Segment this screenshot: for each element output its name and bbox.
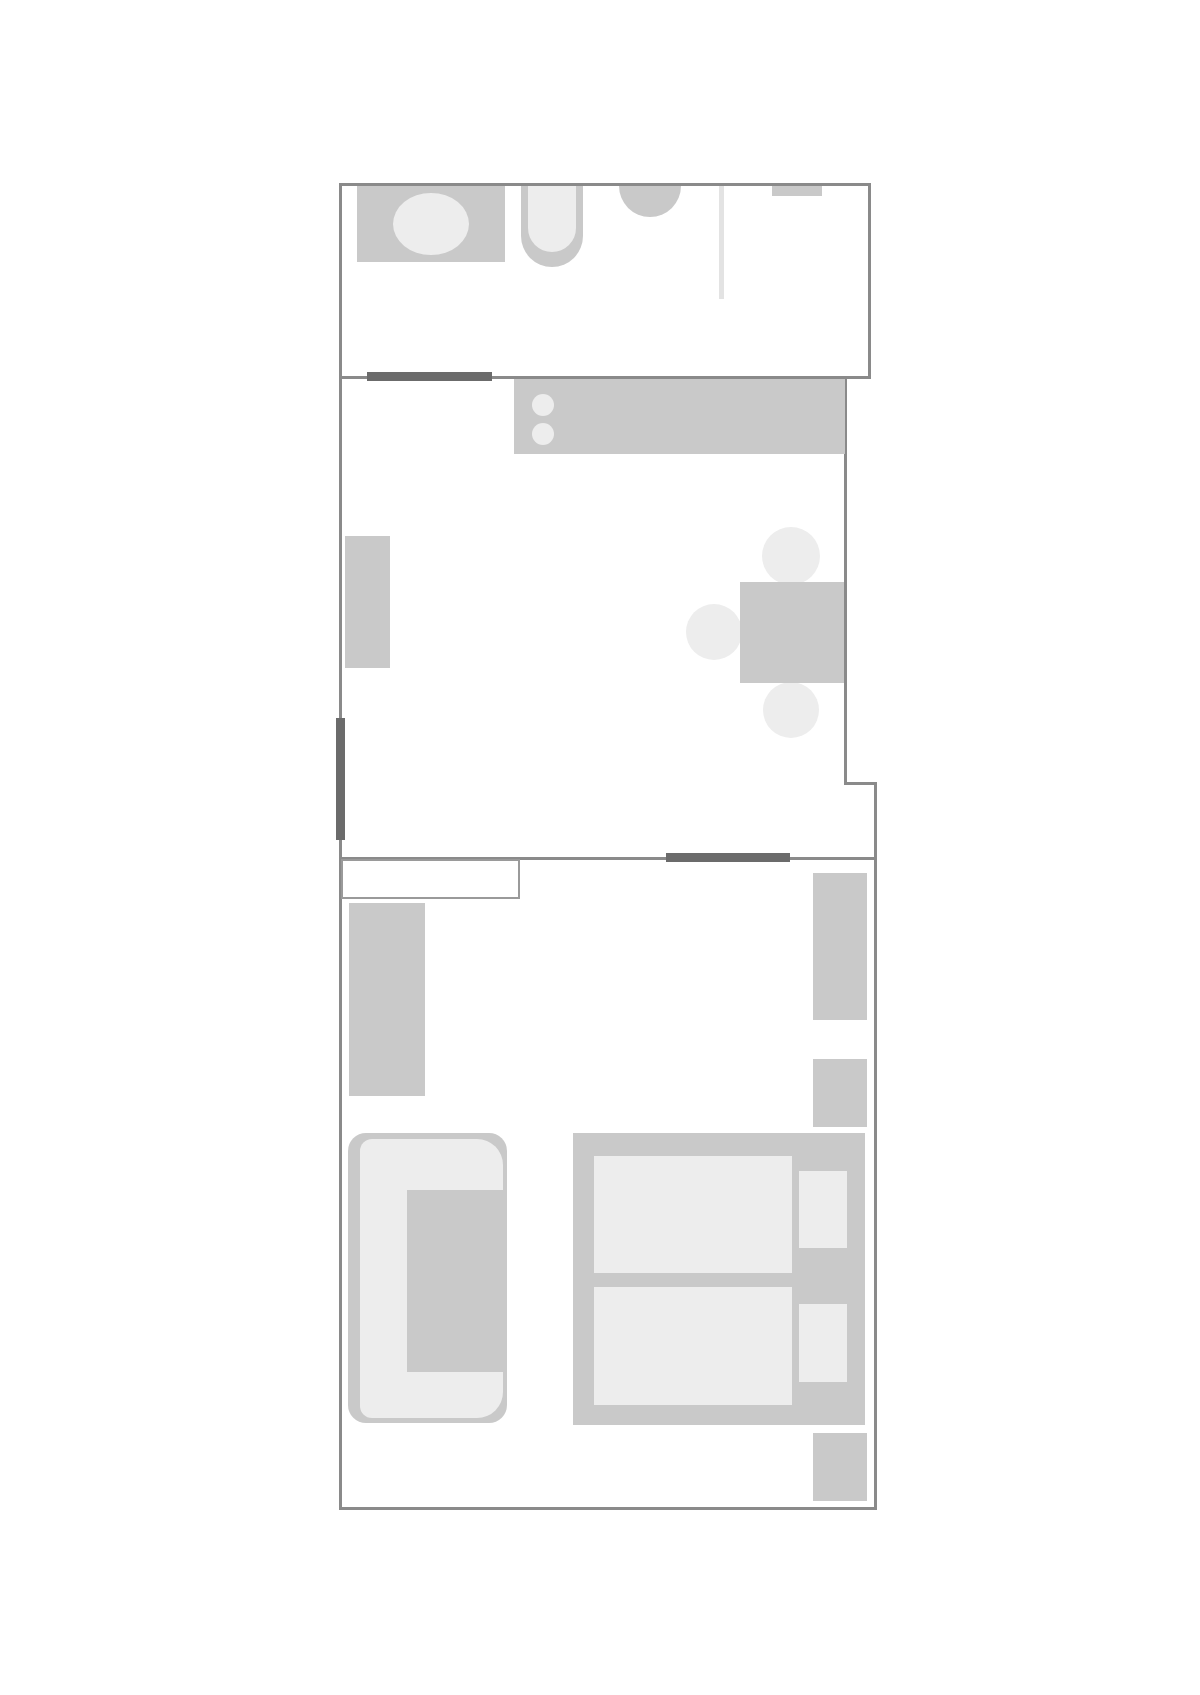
kitchen-sink-burner-bottom [532,423,554,445]
corner-washbasin [619,186,681,217]
dining-chair-left [686,604,742,660]
pillow-bottom [799,1304,847,1382]
dining-chair-top [762,527,820,585]
bedroom-door-marker [666,853,790,862]
vanity-sink-basin [393,193,469,255]
bedroom-closet-niche [341,859,520,899]
kitchen-side-cabinet [345,536,390,668]
shower-screen-divider [719,186,724,299]
lower-right-wall [874,782,877,1510]
kitchen-step-wall [844,782,877,785]
outer-left-wall [339,183,342,1510]
wardrobe-left [349,903,425,1096]
wardrobe-right [813,873,867,1020]
pillow-top [799,1171,847,1248]
kitchen-sink-burner-top [532,394,554,416]
bathroom-wall-shelf [772,186,822,196]
mattress-top [594,1156,792,1273]
kitchen-left-door-marker [336,718,345,840]
dining-chair-bottom [763,682,819,738]
nightstand-bottom [813,1433,867,1501]
outer-bottom-wall [339,1507,877,1510]
kitchen-counter [514,379,845,454]
sofa-backrest [407,1190,507,1372]
bathroom-right-wall [868,183,871,379]
dining-table [740,582,844,683]
nightstand-top [813,1059,867,1127]
bathroom-door-marker [367,372,492,381]
mattress-bottom [594,1287,792,1405]
floor-plan-canvas [0,0,1200,1695]
toilet-bowl-inner [528,186,576,252]
